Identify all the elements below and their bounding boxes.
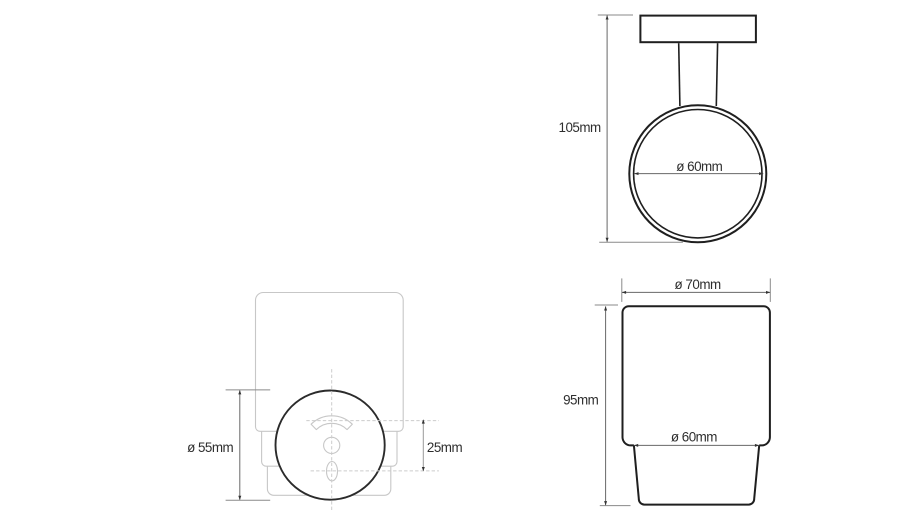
svg-text:ø 70mm: ø 70mm	[675, 277, 721, 292]
svg-text:ø 55mm: ø 55mm	[187, 440, 233, 455]
svg-text:ø 60mm: ø 60mm	[676, 159, 722, 174]
svg-text:105mm: 105mm	[559, 120, 601, 135]
svg-text:25mm: 25mm	[427, 440, 463, 455]
svg-text:95mm: 95mm	[563, 392, 599, 407]
svg-text:ø 60mm: ø 60mm	[671, 429, 717, 444]
